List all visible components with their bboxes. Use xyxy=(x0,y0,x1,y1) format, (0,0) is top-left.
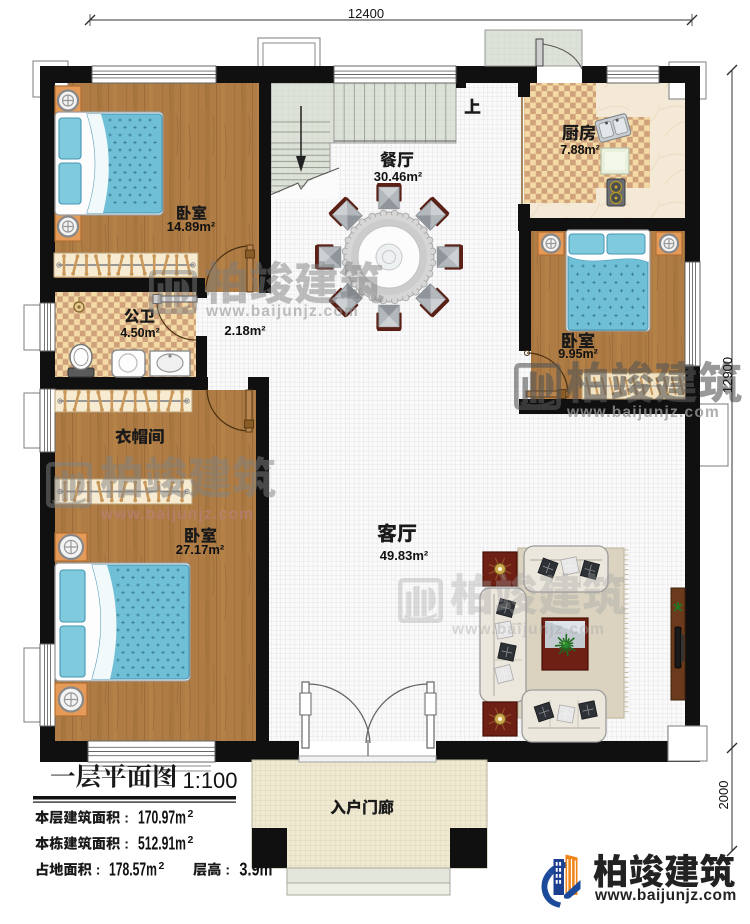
svg-text:2: 2 xyxy=(159,860,165,872)
svg-text:170.97m: 170.97m xyxy=(138,808,186,828)
svg-text:4.50m²: 4.50m² xyxy=(120,326,160,340)
svg-text:3.9m: 3.9m xyxy=(239,860,272,880)
svg-text:49.83m²: 49.83m² xyxy=(380,548,429,563)
svg-text::: : xyxy=(124,836,129,852)
svg-text:7.88m²: 7.88m² xyxy=(560,143,600,157)
svg-text::: : xyxy=(124,810,129,826)
svg-text:2: 2 xyxy=(188,834,194,846)
svg-text::: : xyxy=(96,862,101,878)
svg-text:12900: 12900 xyxy=(720,357,735,393)
svg-text:30.46m²: 30.46m² xyxy=(374,169,423,184)
svg-text:27.17m²: 27.17m² xyxy=(176,542,225,557)
svg-text:www.baijunjz.com: www.baijunjz.com xyxy=(594,887,737,904)
svg-text:9.95m²: 9.95m² xyxy=(558,347,598,361)
svg-text:www.baijunjz.com: www.baijunjz.com xyxy=(205,303,359,320)
svg-text:512.91m: 512.91m xyxy=(138,834,186,854)
svg-text::: : xyxy=(225,862,230,878)
svg-text:www.baijunjz.com: www.baijunjz.com xyxy=(451,621,605,638)
svg-text:14.89m²: 14.89m² xyxy=(167,219,216,234)
svg-text:178.57m: 178.57m xyxy=(109,860,157,880)
svg-text:2000: 2000 xyxy=(716,781,731,810)
svg-text:2: 2 xyxy=(188,808,194,820)
svg-text:1:100: 1:100 xyxy=(182,768,237,793)
svg-text:2.18m²: 2.18m² xyxy=(224,323,266,338)
svg-text:12400: 12400 xyxy=(348,6,384,21)
svg-text:www.baijunjz.com: www.baijunjz.com xyxy=(100,506,254,523)
svg-text:www.baijunjz.com: www.baijunjz.com xyxy=(566,404,720,421)
